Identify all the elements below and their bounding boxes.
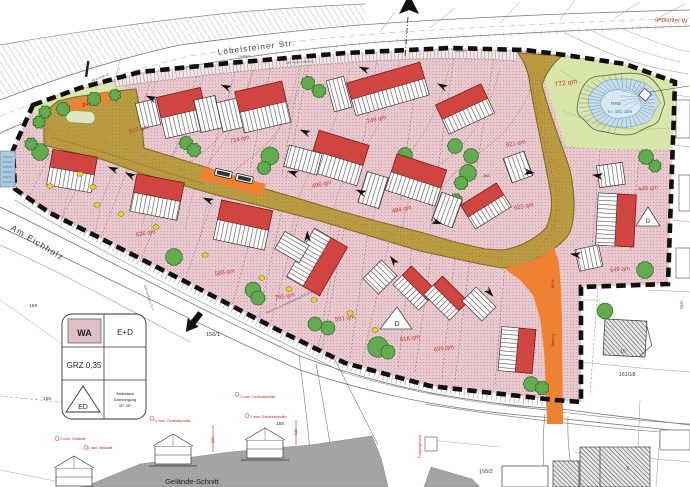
- svg-text:Fußweg: Fußweg: [551, 334, 555, 346]
- svg-text:Fußgängerverb.: Fußgängerverb.: [418, 434, 422, 458]
- svg-text:E+D: E+D: [117, 328, 133, 337]
- svg-text:V= 151 cbm: V= 151 cbm: [608, 109, 633, 114]
- svg-text:156/1: 156/1: [206, 332, 220, 338]
- svg-text:161/: 161/: [679, 300, 684, 310]
- svg-text:WA: WA: [77, 328, 92, 338]
- svg-text:-361: -361: [482, 173, 491, 178]
- svg-text:158: 158: [276, 421, 284, 427]
- svg-text:8,50: 8,50: [294, 429, 298, 435]
- svg-text:6: 6: [627, 466, 630, 472]
- svg-text:GRZ 0,35: GRZ 0,35: [67, 361, 102, 370]
- svg-text:Dachneigung: Dachneigung: [114, 398, 136, 402]
- svg-text:159: 159: [29, 303, 37, 309]
- svg-text:ED: ED: [78, 404, 88, 411]
- svg-text:2 max. Gebäudeprofile: 2 max. Gebäudeprofile: [250, 415, 286, 419]
- svg-text:RRB: RRB: [611, 101, 621, 106]
- svg-text:158: 158: [43, 396, 51, 402]
- svg-text:D: D: [646, 219, 651, 225]
- svg-text:Gelände-Schnitt: Gelände-Schnitt: [165, 477, 220, 486]
- svg-text:Satteldach: Satteldach: [116, 392, 134, 396]
- svg-text:1 max. Gebäude: 1 max. Gebäude: [88, 446, 113, 450]
- svg-text:8,50: 8,50: [211, 437, 215, 443]
- svg-text:D: D: [394, 321, 399, 328]
- svg-text:10: 10: [620, 349, 626, 355]
- svg-text:1 vorh. Geländeprofile: 1 vorh. Geländeprofile: [155, 419, 190, 423]
- svg-text:2 vorh. Gelände: 2 vorh. Gelände: [60, 437, 86, 441]
- svg-text:155/2: 155/2: [479, 469, 493, 476]
- svg-text:F+R: F+R: [549, 279, 555, 289]
- svg-text:1 vorh. Geländeprofile: 1 vorh. Geländeprofile: [240, 395, 275, 399]
- svg-text:161/18: 161/18: [619, 372, 636, 378]
- svg-text:30°-45°: 30°-45°: [119, 404, 132, 408]
